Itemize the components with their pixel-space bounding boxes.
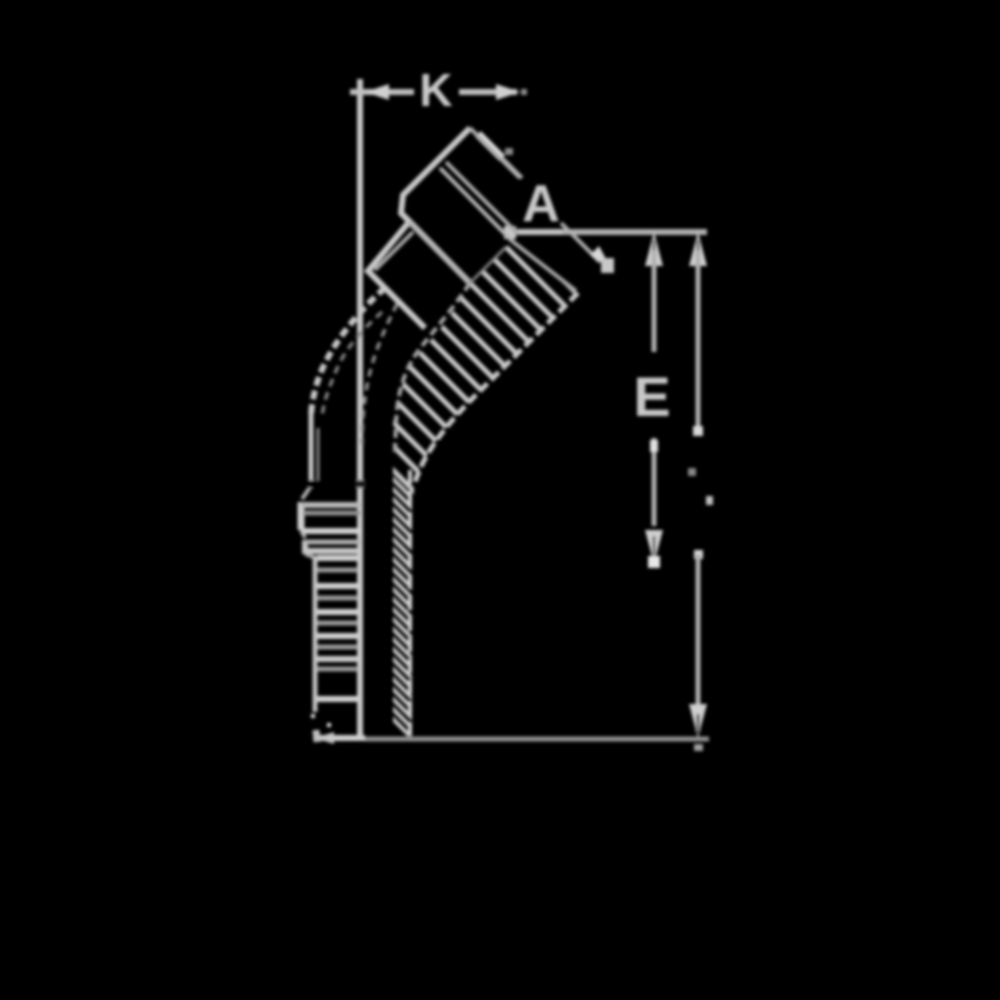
svg-text:A: A	[522, 175, 560, 233]
svg-text:E: E	[633, 365, 670, 428]
svg-text:K: K	[419, 64, 452, 116]
